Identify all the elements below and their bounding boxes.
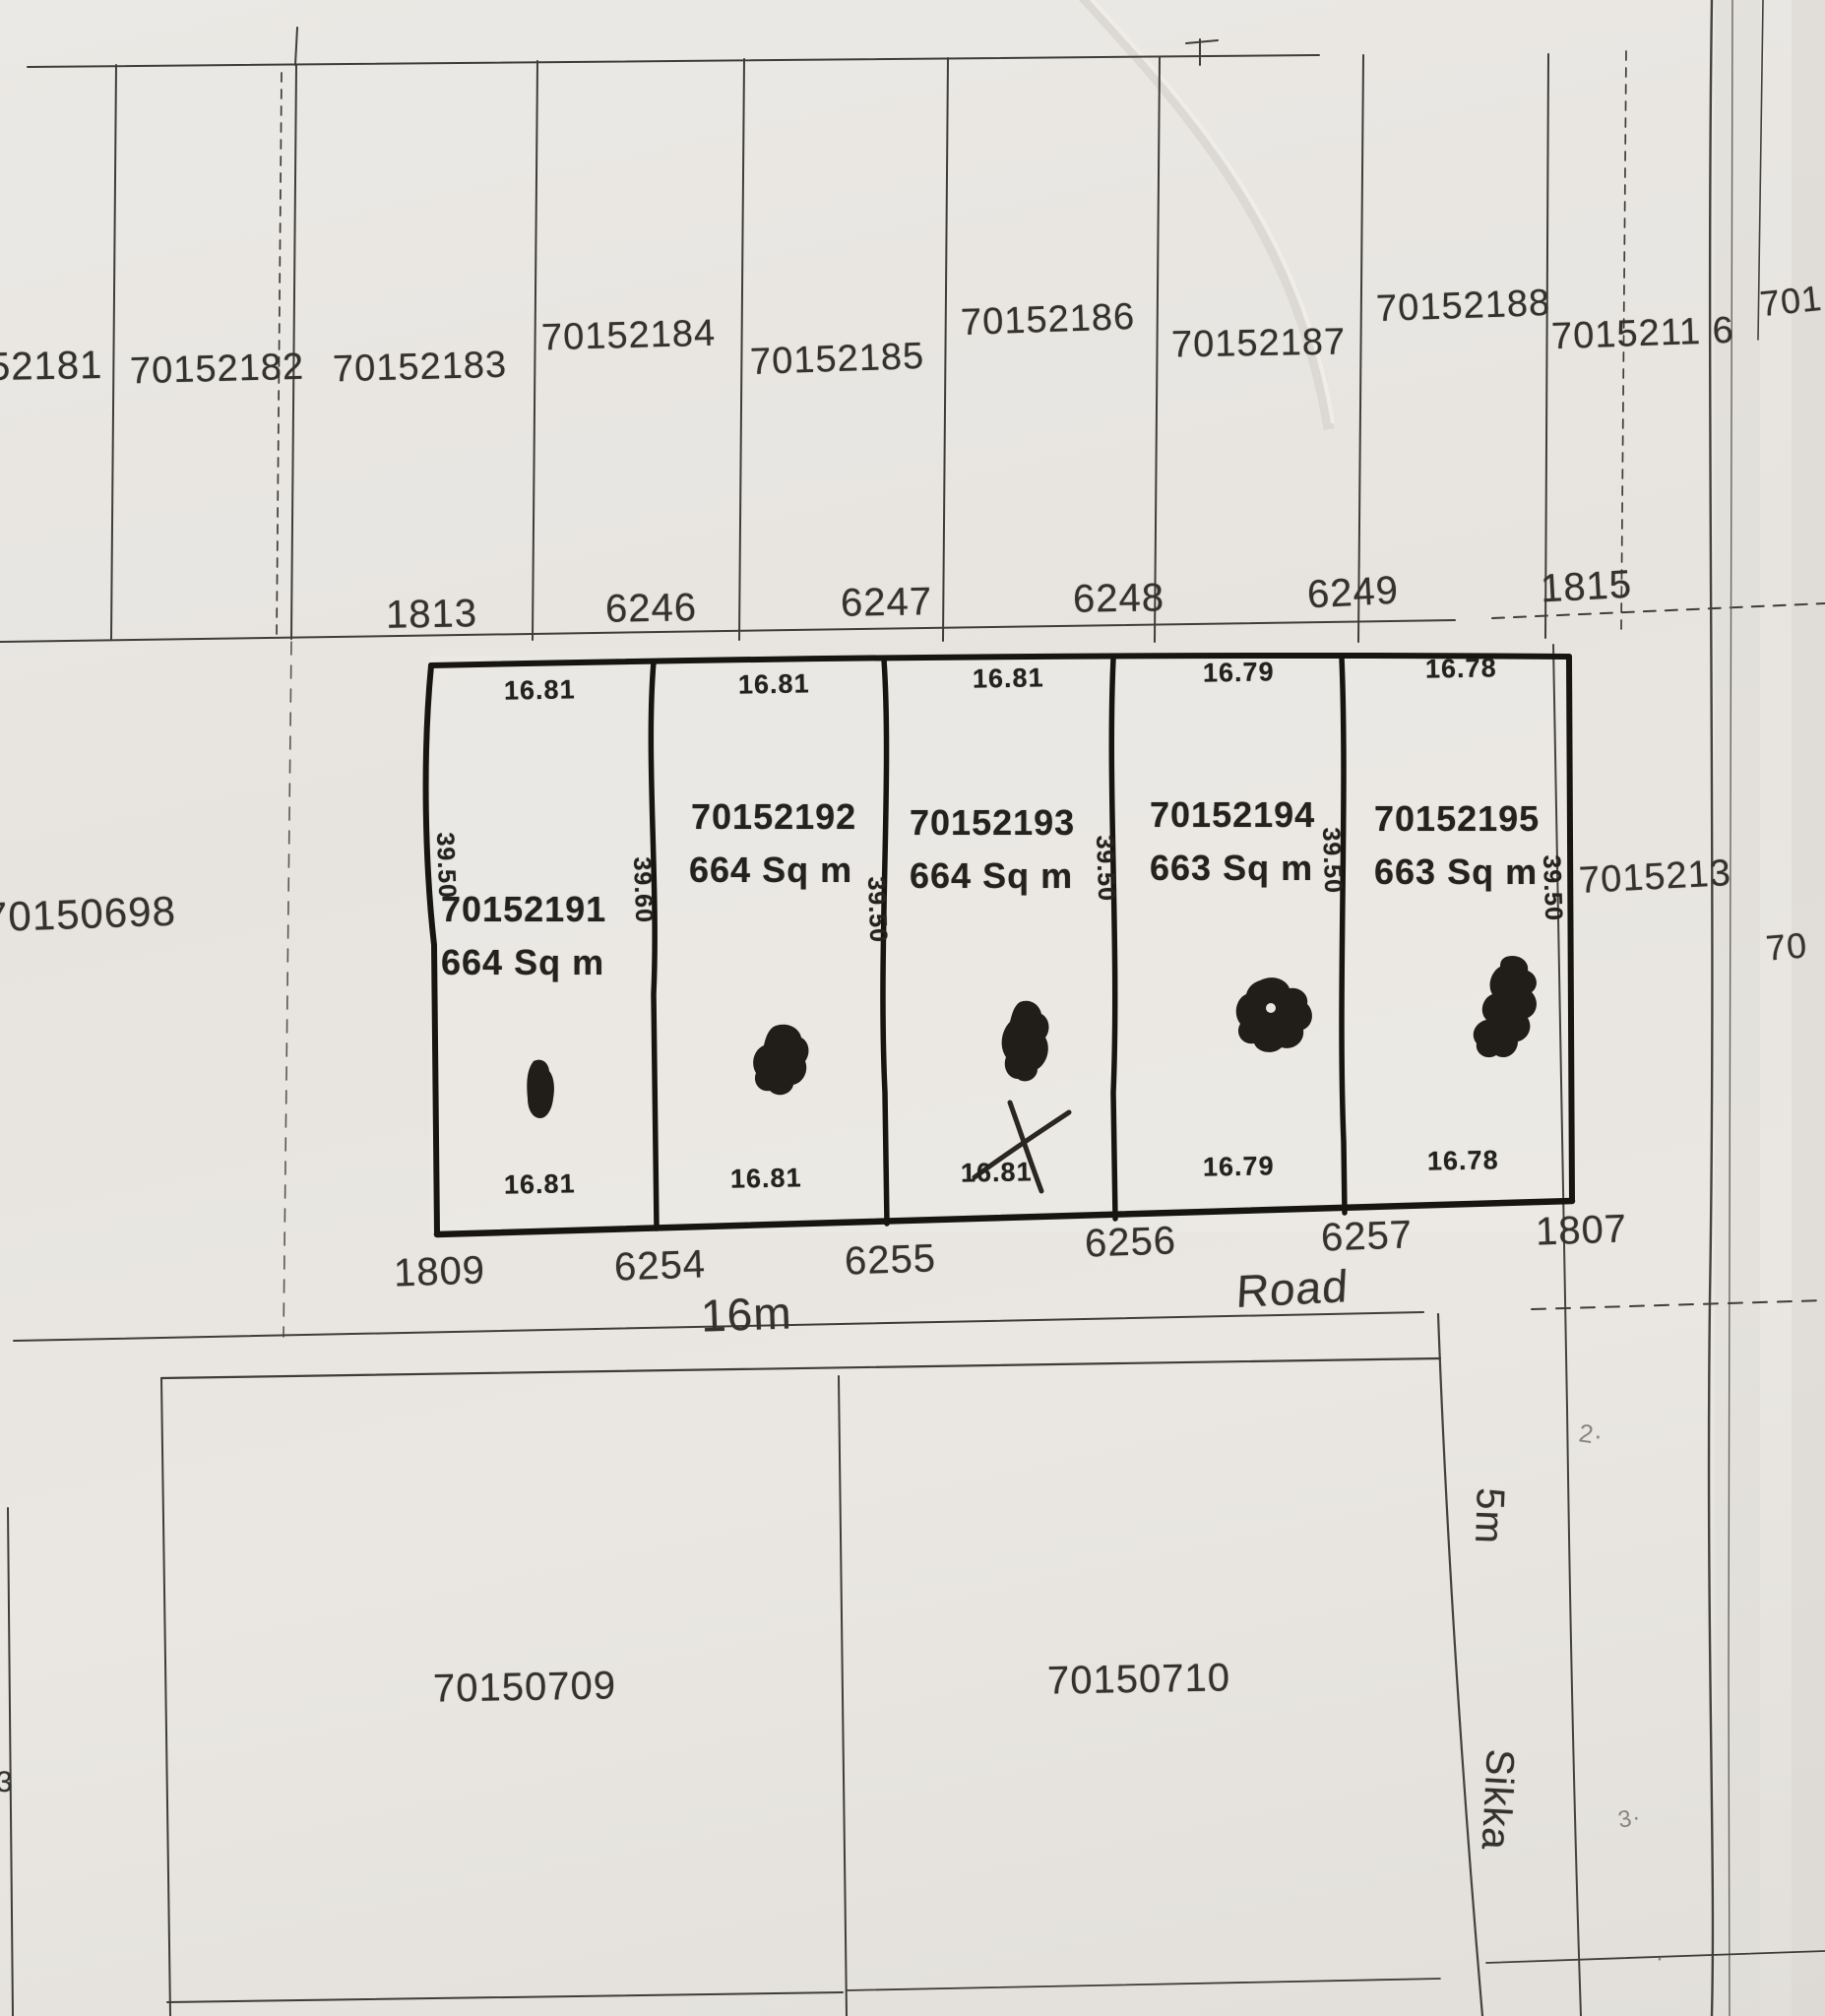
left-parcel-70150698: 70150698 (0, 891, 177, 939)
road-width-label: 16m (700, 1290, 792, 1338)
upper-parcel-70152181-partial: 52181 (0, 346, 103, 387)
dim-top-16-81-a: 16.81 (504, 676, 576, 704)
dim-top-16-81-c: 16.81 (973, 664, 1044, 692)
dim-side-39-50-plot194: 39.50 (1318, 827, 1345, 894)
marker-6247: 6247 (841, 582, 933, 623)
marker-6256: 6256 (1084, 1221, 1176, 1263)
plot-70152195-number: 70152195 (1374, 801, 1540, 837)
dim-bot-16-81-a: 16.81 (504, 1170, 576, 1198)
marker-6246: 6246 (605, 588, 698, 629)
dim-side-39-50-plot195: 39.50 (1539, 854, 1565, 921)
marker-6254: 6254 (613, 1244, 706, 1287)
plot-70152193-area: 664 Sq m (910, 858, 1073, 894)
marker-1809: 1809 (393, 1250, 485, 1292)
dim-side-39-50-plot193: 39.50 (1092, 835, 1118, 902)
lower-parcel-lines (8, 1358, 1825, 2016)
marker-6257: 6257 (1320, 1215, 1413, 1257)
block-right-edge (1569, 657, 1572, 1201)
right-parcel-7015213-partial: 7015213 (1578, 854, 1732, 900)
plot-70152192-area: 664 Sq m (689, 852, 852, 888)
handwritten-mark-2: 3· (1616, 1805, 1643, 1833)
fold-line-1 (1709, 0, 1713, 2016)
ink-blob-plot194-hole (1266, 1003, 1276, 1013)
plot-70152191-number: 70152191 (441, 892, 606, 927)
plot-70152195-area: 663 Sq m (1374, 854, 1538, 890)
corner-tick-serif (1186, 40, 1218, 43)
dim-side-39-50-plot191-left: 39.50 (432, 832, 459, 899)
plot-border-194-195 (1342, 658, 1345, 1213)
right-parcel-partial-mid: 70 (1765, 927, 1809, 967)
marker-6248: 6248 (1073, 578, 1165, 619)
dim-top-16-81-b: 16.81 (738, 670, 810, 698)
upper-parcel-70152187: 70152187 (1171, 323, 1347, 363)
plot-70152192-number: 70152192 (691, 799, 856, 835)
lower-parcel-70150710: 70150710 (1047, 1658, 1231, 1700)
dim-side-39-50-plot192: 39.50 (863, 876, 890, 943)
upper-parcel-70152183: 70152183 (333, 346, 508, 389)
upper-parcel-70152188: 70152188 (1375, 284, 1550, 328)
upper-parcel-70152185: 70152185 (749, 338, 924, 381)
upper-parcel-70152116: 7015211 6 (1550, 312, 1734, 355)
road-centerline (14, 1300, 1825, 1341)
plot-70152194-area: 663 Sq m (1150, 850, 1313, 886)
marker-6255: 6255 (844, 1238, 936, 1281)
handwritten-mark-3: · (1656, 1947, 1665, 1971)
marker-1815: 1815 (1540, 565, 1633, 609)
cadastral-survey-sheet: 5218170152182701521837015218470152185701… (0, 0, 1825, 2016)
lower-left-parcel-partial: 3 (0, 1768, 14, 1797)
plot-70152191-area: 664 Sq m (441, 945, 604, 980)
dim-bot-16-81-c: 16.81 (961, 1159, 1033, 1186)
sikka-width-label: 5m (1469, 1487, 1510, 1545)
plot-70152193-number: 70152193 (910, 805, 1075, 841)
dim-top-16-78: 16.78 (1425, 655, 1497, 682)
upper-parcel-70152182: 70152182 (130, 348, 305, 391)
handwritten-mark-1: 2· (1577, 1419, 1605, 1448)
marker-1807: 1807 (1535, 1209, 1627, 1251)
upper-parcel-70152186: 70152186 (960, 298, 1135, 342)
dim-top-16-79: 16.79 (1203, 659, 1275, 686)
dim-bot-16-78: 16.78 (1427, 1147, 1499, 1174)
map-linework (0, 0, 1825, 2016)
dim-bot-16-79: 16.79 (1203, 1153, 1275, 1180)
right-parcel-partial-top: 701 (1758, 281, 1823, 322)
marker-1813: 1813 (386, 594, 478, 635)
lower-parcel-70150709: 70150709 (433, 1666, 617, 1708)
upper-parcel-70152184: 70152184 (541, 315, 717, 357)
road-name-label: Road (1235, 1263, 1350, 1314)
marker-6249: 6249 (1306, 571, 1400, 615)
sikka-name-label: Sikka (1476, 1748, 1520, 1852)
dim-side-39-60-plot191-right: 39.60 (629, 856, 656, 923)
dim-bot-16-81-b: 16.81 (730, 1165, 802, 1192)
plot-70152194-number: 70152194 (1150, 797, 1315, 833)
sikka-left-edge (1438, 1314, 1482, 2016)
